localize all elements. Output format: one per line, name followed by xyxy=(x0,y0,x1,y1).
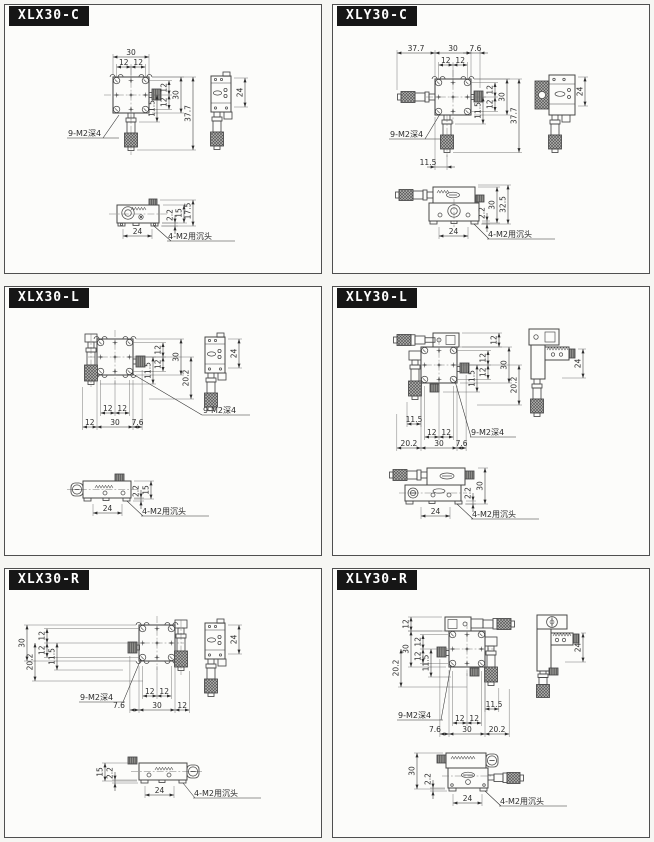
product-title-badge: XLX30-L xyxy=(9,288,89,308)
dim-label: 15 xyxy=(141,485,150,495)
bottom-view: 2.21517.5244-M2用沉头 xyxy=(109,199,235,241)
dim-label: 12 xyxy=(37,631,46,641)
dim-label: 24 xyxy=(573,359,582,369)
dim-label: 12 xyxy=(489,335,498,345)
product-panel-xlx30-r: XLX30-R 30121220.211.512127.630129-M2深42… xyxy=(4,568,322,838)
dim-label: 32.5 xyxy=(498,196,507,213)
drawing-root: 37.7307.6121212123011.537.79-M2深411.5242… xyxy=(389,44,588,239)
dim-label: 12 xyxy=(441,56,451,65)
dim-label: 24 xyxy=(575,87,584,97)
side-view: 24 xyxy=(205,619,243,697)
plan-view: 37.7307.6121212123011.537.79-M2深411.5 xyxy=(389,44,522,170)
side-view: 24 xyxy=(211,72,249,150)
dim-label: 12 xyxy=(455,714,465,723)
drawing-root: 30121220.211.512127.630129-M2深424152.224… xyxy=(17,616,261,798)
dim-label: 24 xyxy=(229,635,238,645)
dim-label: 2.2 xyxy=(463,487,472,499)
dim-label: 12 xyxy=(455,56,465,65)
dim-label: 37.7 xyxy=(509,107,518,124)
thread-note: 9-M2深4 xyxy=(398,711,431,720)
dim-label: 20.2 xyxy=(489,725,506,734)
dim-label: 20.2 xyxy=(25,653,34,670)
dim-label: 11.5 xyxy=(47,648,56,665)
dim-label: 12 xyxy=(159,83,168,93)
dim-label: 11.5 xyxy=(406,415,423,424)
dim-label: 2.2 xyxy=(423,773,432,785)
dim-label: 12 xyxy=(37,645,46,655)
dim-label: 12 xyxy=(485,99,494,109)
thread-note: 9-M2深4 xyxy=(390,130,423,139)
dim-label: 12 xyxy=(145,687,155,696)
dim-label: 12 xyxy=(469,714,479,723)
product-panel-xly30-l: XLY30-L 1212123011.520.211.5121220.2307.… xyxy=(332,286,650,556)
drawing-root: 30121212123011.537.79-M2深4242.21517.5244… xyxy=(67,48,248,241)
product-title: XLX30-L xyxy=(18,290,80,305)
dim-label: 30 xyxy=(171,90,180,100)
dim-label: 30 xyxy=(462,725,472,734)
dim-label: 24 xyxy=(103,504,113,513)
bottom-view: 2.23032.5244-M2用沉头 xyxy=(396,185,556,239)
product-panel-xly30-r: XLY30-R 1230121220.211.511.512127.63020.… xyxy=(332,568,650,838)
dim-label: 30 xyxy=(434,439,444,448)
dim-label: 30 xyxy=(448,44,458,53)
dim-label: 24 xyxy=(573,643,582,653)
dim-label: 30 xyxy=(487,200,496,210)
dim-label: 30 xyxy=(407,766,416,776)
dim-label: 2.2 xyxy=(477,207,486,219)
side-view: 24 xyxy=(529,329,586,417)
dim-label: 30 xyxy=(152,701,162,710)
dim-label: 7.6 xyxy=(132,418,144,427)
dim-label: 7.6 xyxy=(429,725,441,734)
bottom-view: 302.2244-M2用沉头 xyxy=(407,753,567,806)
product-title-badge: XLY30-L xyxy=(337,288,417,308)
dim-label: 12 xyxy=(413,637,422,647)
bottom-view: 2.215244-M2用沉头 xyxy=(67,474,209,516)
technical-drawing: 1230121220.211.511.512127.63020.29-M2深42… xyxy=(333,569,651,839)
thread-note: 9-M2深4 xyxy=(471,428,504,437)
technical-drawing: 1212123011.520.211.5121220.2307.69-M2深42… xyxy=(333,287,651,557)
dim-label: 11.5 xyxy=(467,370,476,387)
dim-label: 30 xyxy=(110,418,120,427)
dim-label: 7.6 xyxy=(470,44,482,53)
dim-label: 11.5 xyxy=(147,100,156,117)
dim-label: 11.5 xyxy=(486,700,503,709)
dim-label: 12 xyxy=(153,345,162,355)
dim-label: 12 xyxy=(177,701,187,710)
dim-label: 24 xyxy=(229,349,238,359)
dim-label: 37.7 xyxy=(183,105,192,122)
counterbore-note: 4-M2用沉头 xyxy=(488,229,532,239)
dim-label: 20.2 xyxy=(401,439,418,448)
dim-label: 30 xyxy=(401,644,410,654)
dim-label: 2.2 xyxy=(165,209,174,221)
dim-label: 12 xyxy=(485,85,494,95)
counterbore-note: 4-M2用沉头 xyxy=(472,509,516,519)
side-view: 24 xyxy=(537,615,587,698)
dim-label: 11.5 xyxy=(420,158,437,167)
drawing-root: 1230121220.211.511.512127.63020.29-M2深42… xyxy=(391,615,586,806)
dim-label: 2.2 xyxy=(131,485,140,497)
drawing-root: 12123011.520.2121212307.69-M2深4242.21524… xyxy=(67,330,250,516)
dim-label: 37.7 xyxy=(408,44,425,53)
dim-label: 20.2 xyxy=(509,376,518,393)
dim-label: 12 xyxy=(85,418,95,427)
bottom-view: 2.230244-M2用沉头 xyxy=(390,468,540,519)
plan-view: 30121220.211.512127.630129-M2深4 xyxy=(17,616,189,713)
side-view: 24 xyxy=(205,333,243,411)
dim-label: 30 xyxy=(475,481,484,491)
dim-label: 24 xyxy=(155,786,165,795)
product-panel-xlx30-c: XLX30-C 30121212123011.537.79-M2深4242.21… xyxy=(4,4,322,274)
dim-label: 12 xyxy=(159,97,168,107)
dim-label: 24 xyxy=(449,227,459,236)
product-title: XLY30-R xyxy=(346,572,408,587)
dim-label: 12 xyxy=(441,428,451,437)
dim-label: 11.5 xyxy=(143,362,152,379)
product-title-badge: XLX30-C xyxy=(9,6,89,26)
dim-label: 11.5 xyxy=(421,654,430,671)
product-title-badge: XLX30-R xyxy=(9,570,89,590)
dim-label: 12 xyxy=(153,359,162,369)
product-title: XLY30-C xyxy=(346,8,408,23)
dim-label: 30 xyxy=(17,638,26,648)
dim-label: 20.2 xyxy=(181,369,190,386)
dim-label: 12 xyxy=(119,58,129,67)
product-title: XLX30-R xyxy=(18,572,80,587)
dim-label: 12 xyxy=(159,687,169,696)
dim-label: 24 xyxy=(463,794,473,803)
dim-label: 20.2 xyxy=(391,659,400,676)
dim-label: 11.5 xyxy=(473,102,482,119)
product-title-badge: XLY30-C xyxy=(337,6,417,26)
dim-label: 12 xyxy=(117,404,127,413)
product-panel-xlx30-l: XLX30-L 12123011.520.2121212307.69-M2深42… xyxy=(4,286,322,556)
counterbore-note: 4-M2用沉头 xyxy=(500,796,544,806)
dim-label: 15 xyxy=(95,767,104,777)
dim-label: 30 xyxy=(126,48,136,57)
dim-label: 7.6 xyxy=(456,439,468,448)
dim-label: 12 xyxy=(401,619,410,629)
side-view: 24 xyxy=(535,75,588,153)
technical-drawing: 12123011.520.2121212307.69-M2深4242.21524… xyxy=(5,287,323,557)
dim-label: 12 xyxy=(103,404,113,413)
technical-drawing: 37.7307.6121212123011.537.79-M2深411.5242… xyxy=(333,5,651,275)
technical-drawing: 30121220.211.512127.630129-M2深424152.224… xyxy=(5,569,323,839)
dim-label: 12 xyxy=(427,428,437,437)
dim-label: 15 xyxy=(174,208,183,218)
plan-view: 30121212123011.537.79-M2深4 xyxy=(67,48,196,155)
dim-label: 12 xyxy=(478,353,487,363)
technical-drawing: 30121212123011.537.79-M2深4242.21517.5244… xyxy=(5,5,323,275)
dim-label: 12 xyxy=(478,367,487,377)
product-title: XLY30-L xyxy=(346,290,408,305)
dim-label: 24 xyxy=(431,507,441,516)
dim-label: 30 xyxy=(497,92,506,102)
thread-note: 9-M2深4 xyxy=(80,693,113,702)
thread-note: 9-M2深4 xyxy=(68,129,101,138)
bottom-view: 152.2244-M2用沉头 xyxy=(95,757,261,798)
counterbore-note: 4-M2用沉头 xyxy=(168,231,212,241)
plan-view: 1212123011.520.211.5121220.2307.69-M2深4 xyxy=(394,333,523,451)
product-title-badge: XLY30-R xyxy=(337,570,417,590)
dim-label: 12 xyxy=(133,58,143,67)
counterbore-note: 4-M2用沉头 xyxy=(142,506,186,516)
drawing-root: 1212123011.520.211.5121220.2307.69-M2深42… xyxy=(390,329,587,519)
dim-label: 2.2 xyxy=(105,767,114,779)
dim-label: 17.5 xyxy=(183,202,192,219)
dim-label: 24 xyxy=(133,227,143,236)
counterbore-note: 4-M2用沉头 xyxy=(194,788,238,798)
product-panel-xly30-c: XLY30-C 37.7307.6121212123011.537.79-M2深… xyxy=(332,4,650,274)
dim-label: 7.6 xyxy=(113,701,125,710)
plan-view: 1230121220.211.511.512127.63020.29-M2深4 xyxy=(391,617,514,737)
product-title: XLX30-C xyxy=(18,8,80,23)
dim-label: 24 xyxy=(235,88,244,98)
